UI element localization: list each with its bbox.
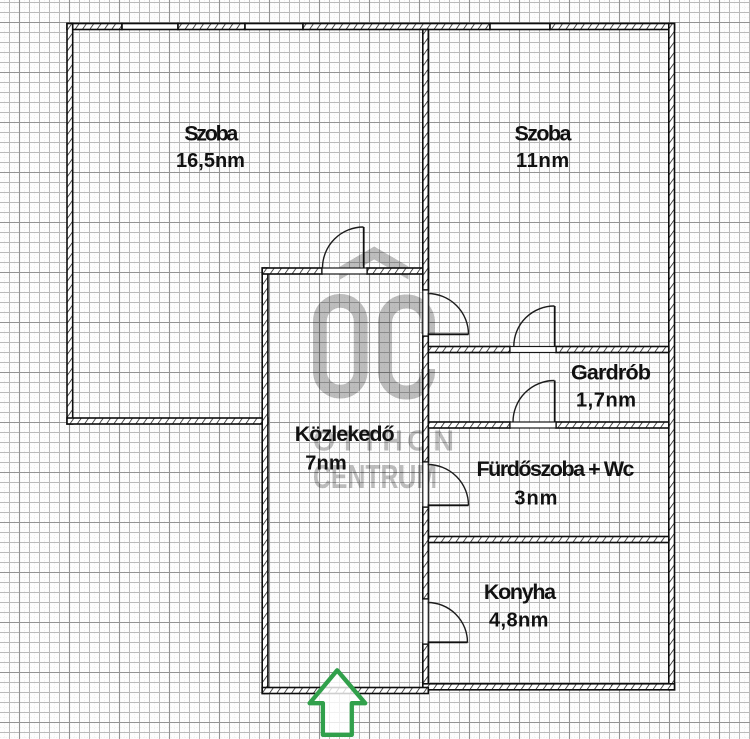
- svg-text:Közlekedő: Közlekedő: [295, 422, 395, 446]
- svg-text:Konyha: Konyha: [484, 580, 557, 604]
- svg-text:Gardrób: Gardrób: [571, 360, 651, 384]
- svg-text:11nm: 11nm: [516, 150, 569, 172]
- svg-text:Fürdőszoba + Wc: Fürdőszoba + Wc: [477, 457, 635, 481]
- svg-text:Szoba: Szoba: [184, 122, 239, 146]
- svg-text:4,8nm: 4,8nm: [489, 610, 549, 632]
- svg-text:16,5nm: 16,5nm: [176, 150, 245, 172]
- svg-text:Szoba: Szoba: [515, 122, 573, 146]
- svg-text:3nm: 3nm: [514, 487, 557, 509]
- svg-text:1,7nm: 1,7nm: [576, 390, 636, 412]
- svg-text:7nm: 7nm: [305, 452, 346, 474]
